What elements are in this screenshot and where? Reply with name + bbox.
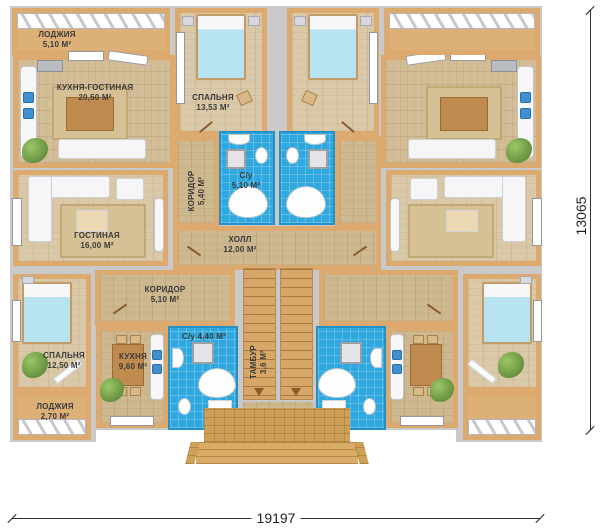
bath-sink-icon xyxy=(370,348,382,368)
floor-plan: ЛОДЖИЯ5,10 М² КУХНЯ-ГОСТИНАЯ20,50 М² СПА… xyxy=(0,0,600,530)
room-hall xyxy=(173,226,381,270)
chair xyxy=(130,335,141,344)
tv-stand xyxy=(154,198,164,252)
coffee-table xyxy=(76,210,108,232)
porch-steps xyxy=(196,442,358,464)
sink-icon xyxy=(392,350,402,360)
dimension-height-label: 13065 xyxy=(573,192,589,241)
stove-icon xyxy=(37,60,63,72)
sofa xyxy=(58,139,146,159)
chair xyxy=(130,387,141,396)
bed xyxy=(482,282,532,344)
nightstand xyxy=(182,16,194,26)
stove-icon xyxy=(491,60,517,72)
bath-sink-icon xyxy=(304,134,326,145)
toilet-icon xyxy=(178,398,191,415)
label-kitchen-bottom: КУХНЯ9,60 М² xyxy=(119,352,148,372)
window-icon xyxy=(533,300,542,342)
bathtub-icon xyxy=(286,186,326,218)
label-wc-bottom: С/у 4,40 М² xyxy=(182,332,226,342)
label-loggia-top: ЛОДЖИЯ5,10 М² xyxy=(38,30,75,50)
label-loggia-bottom: ЛОДЖИЯ2,70 М² xyxy=(36,402,73,422)
loggia-glazing xyxy=(468,419,536,435)
corner-sofa xyxy=(502,176,526,242)
window-icon xyxy=(68,51,104,61)
armchair xyxy=(410,178,438,200)
room-loggia-top-left xyxy=(12,8,170,55)
window-icon xyxy=(400,416,444,426)
shower-tray-icon xyxy=(192,342,214,364)
stair-flight-left xyxy=(243,268,276,400)
window-icon xyxy=(176,32,185,104)
window-icon xyxy=(369,32,378,104)
chair xyxy=(413,387,424,396)
stair-arrow-icon xyxy=(254,388,264,396)
label-wc-top: С/у5,10 М² xyxy=(232,171,261,191)
sink-icon xyxy=(520,108,531,119)
bathtub-icon xyxy=(318,368,356,398)
armchair xyxy=(116,178,144,200)
dimension-width-label: 19197 xyxy=(252,510,301,526)
sofa xyxy=(408,139,496,159)
shower-tray-icon xyxy=(226,149,246,169)
window-icon xyxy=(12,198,22,246)
loggia-glazing xyxy=(17,13,165,29)
toilet-icon xyxy=(286,147,299,164)
sink-icon xyxy=(23,108,34,119)
bath-sink-icon xyxy=(228,134,250,145)
stair-arrow-icon xyxy=(291,388,301,396)
coffee-table xyxy=(446,210,478,232)
sink-icon xyxy=(520,92,531,103)
label-kitchen-living: КУХНЯ-ГОСТИНАЯ20,50 М² xyxy=(57,83,134,103)
toilet-icon xyxy=(255,147,268,164)
bathtub-icon xyxy=(198,368,236,398)
room-loggia-bottom-right xyxy=(463,392,541,440)
chair xyxy=(427,335,438,344)
window-icon xyxy=(110,416,154,426)
chair xyxy=(116,335,127,344)
label-tambour: ТАМБУР3,6 М² xyxy=(249,345,269,379)
tv-stand xyxy=(390,198,400,252)
nightstand xyxy=(520,276,532,284)
nightstand xyxy=(248,16,260,26)
shower-tray-icon xyxy=(308,149,328,169)
room-loggia-top-right xyxy=(384,8,540,55)
label-corridor-top: КОРИДОР5,40 М² xyxy=(187,171,207,212)
shower-tray-icon xyxy=(340,342,362,364)
toilet-icon xyxy=(363,398,376,415)
label-living-room: ГОСТИНАЯ16,00 М² xyxy=(74,231,120,251)
nightstand xyxy=(22,276,34,284)
stair-flight-right xyxy=(280,268,313,400)
label-corridor-bottom: КОРИДОР5,10 М² xyxy=(145,285,186,305)
chair xyxy=(413,335,424,344)
label-bedroom-bottom: СПАЛЬНЯ12,50 М² xyxy=(43,351,85,371)
label-hall: ХОЛЛ12,00 М² xyxy=(223,235,256,255)
bath-sink-icon xyxy=(172,348,184,368)
bed xyxy=(196,14,246,80)
window-icon xyxy=(532,198,542,246)
room-corridor-bottom-right xyxy=(319,270,458,326)
dimension-line-right xyxy=(590,10,591,430)
sink-icon xyxy=(392,364,402,374)
nightstand xyxy=(294,16,306,26)
porch xyxy=(204,408,350,442)
room-corridor-top-right xyxy=(335,136,381,228)
window-icon xyxy=(12,300,21,342)
nightstand xyxy=(360,16,372,26)
bed xyxy=(308,14,358,80)
loggia-glazing xyxy=(389,13,535,29)
sink-icon xyxy=(152,350,162,360)
corner-sofa xyxy=(28,176,52,242)
bed xyxy=(22,282,72,344)
dining-table xyxy=(440,97,488,131)
sink-icon xyxy=(23,92,34,103)
label-bedroom-top: СПАЛЬНЯ13,53 М² xyxy=(192,93,234,113)
sink-icon xyxy=(152,364,162,374)
